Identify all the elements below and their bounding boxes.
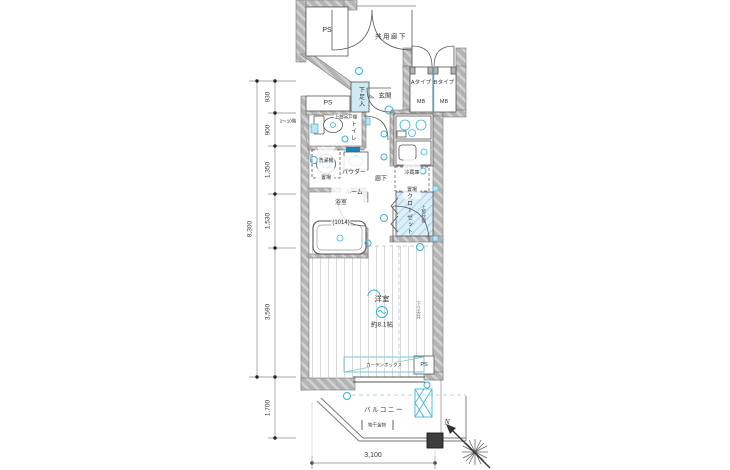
vanity-basin: [349, 156, 363, 166]
toilet-bowl: [324, 118, 343, 133]
fridge-space: [395, 167, 429, 191]
shoe-cabinet-box: [351, 82, 369, 112]
sink-basin: [399, 145, 416, 160]
window-lines: [353, 377, 425, 382]
ps-shaft-top: [306, 7, 348, 56]
structural-column: [427, 433, 443, 448]
balcony-hatch-panel: [415, 389, 432, 417]
compass-icon: [446, 424, 490, 468]
floorplan-page: PS 共用廊下 Aタイプ MB Bタイプ MB PS 下足入 玄関 トイレ 上部…: [0, 0, 730, 470]
washer-drum: [317, 155, 336, 174]
floorplan-drawing: [0, 0, 730, 470]
north-arrow-icon: [452, 430, 490, 468]
ps-shaft-mid: [306, 96, 350, 111]
bathtub: [313, 221, 366, 254]
